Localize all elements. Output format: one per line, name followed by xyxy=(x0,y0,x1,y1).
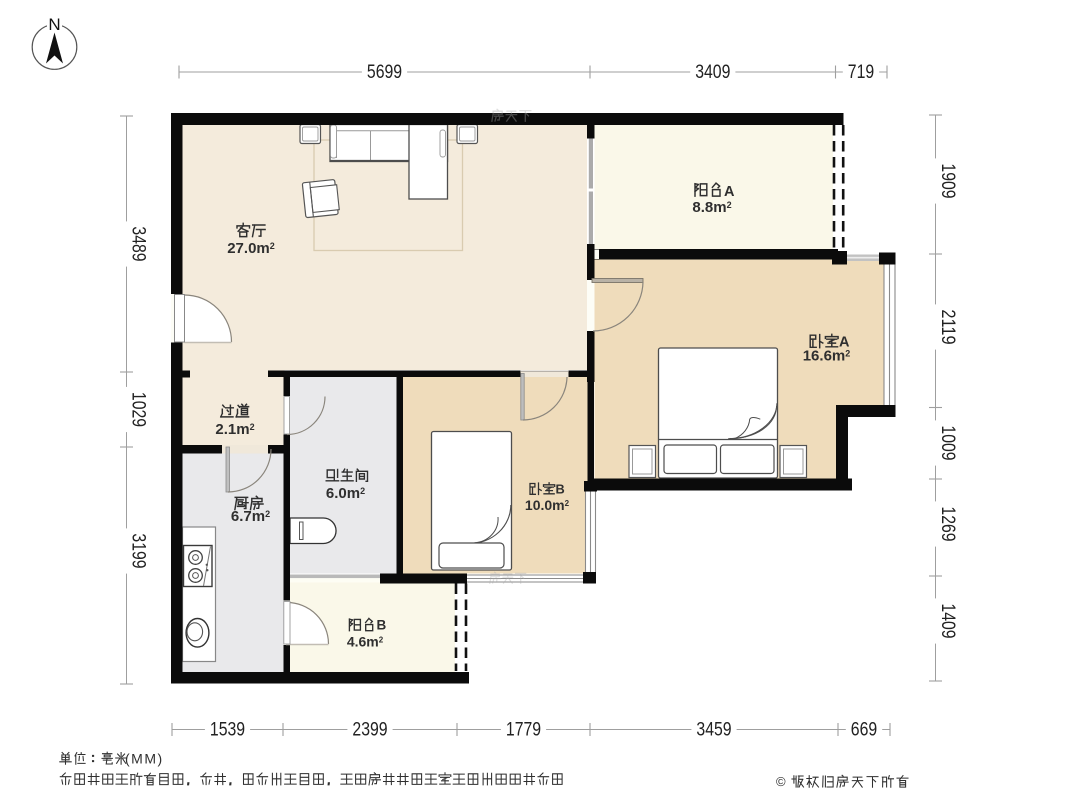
svg-text:4.6m2: 4.6m2 xyxy=(347,634,384,650)
svg-text:1029: 1029 xyxy=(128,392,149,427)
svg-text:669: 669 xyxy=(851,720,877,741)
svg-text:A: A xyxy=(724,184,735,200)
svg-text:6.7m2: 6.7m2 xyxy=(231,508,270,525)
svg-text:1009: 1009 xyxy=(937,425,958,460)
svg-text:2399: 2399 xyxy=(352,720,387,741)
svg-text:5699: 5699 xyxy=(367,62,402,83)
svg-text:N: N xyxy=(48,15,60,34)
svg-text:27.0m2: 27.0m2 xyxy=(227,240,275,257)
svg-text:2.1m2: 2.1m2 xyxy=(215,421,254,438)
svg-text:3489: 3489 xyxy=(128,226,149,261)
svg-text:16.6m2: 16.6m2 xyxy=(803,348,851,365)
svg-text:8.8m2: 8.8m2 xyxy=(692,199,731,216)
svg-text:1539: 1539 xyxy=(210,720,245,741)
svg-text:3409: 3409 xyxy=(695,62,730,83)
svg-text:3199: 3199 xyxy=(128,533,149,568)
svg-text:10.0m2: 10.0m2 xyxy=(525,497,570,513)
svg-text:(MM): (MM) xyxy=(125,751,164,767)
svg-text:2119: 2119 xyxy=(937,309,958,344)
svg-text:B: B xyxy=(377,618,387,633)
svg-text:3459: 3459 xyxy=(696,720,731,741)
svg-text:1909: 1909 xyxy=(937,163,958,198)
svg-text:6.0m2: 6.0m2 xyxy=(326,485,365,502)
svg-text:1269: 1269 xyxy=(937,506,958,541)
svg-text:©: © xyxy=(776,774,786,789)
svg-text:1409: 1409 xyxy=(937,603,958,638)
svg-text:719: 719 xyxy=(848,62,874,83)
svg-text:B: B xyxy=(556,482,565,497)
svg-text:1779: 1779 xyxy=(506,720,541,741)
